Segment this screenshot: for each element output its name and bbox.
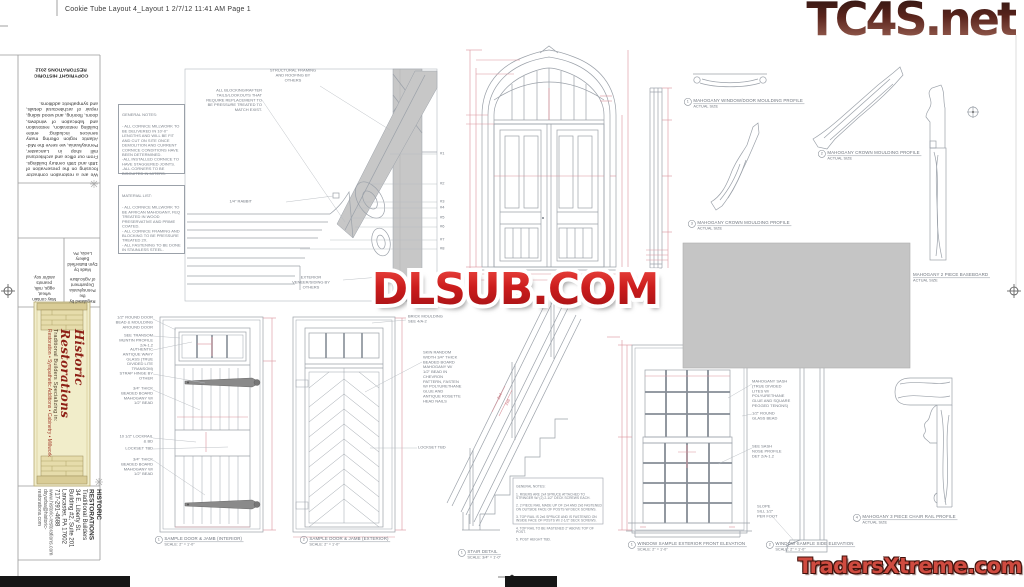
rabbit-note: 1/4" RABBIT [212,199,252,204]
chair-rail-sub: ACTUAL SIZE [862,520,957,524]
logo-subtitle-1: Traditional Builders Specializing in: [52,329,58,463]
stair-note-5: 5. POST HEIGHT TBD. [516,538,602,542]
copyright-text: COPYRIGHT HISTORIC RESTORATIONS 2012 [24,66,98,79]
window-side-caption-number: 2 [766,541,774,549]
callout-3: #3 [440,199,444,204]
chair-rail-number: 4 [853,514,861,522]
address-email: dsyurba@historic-restorations.com [35,489,47,559]
address-company: HISTORIC RESTORATIONS [87,489,102,559]
tradersxtreme-watermark: TradersXtreme.com [798,554,1022,578]
door1-board-label-lower: 3/4" THICK BEADED BOARD MAHOGANY W/ 1/2"… [108,457,153,477]
callout-4: #4 [440,205,444,210]
window-drawing [618,340,827,552]
window-front-caption: 1 WINDOW SAMPLE EXTERIOR FRONT ELEVATION… [628,541,747,551]
baseboard-sub: ACTUAL SIZE [913,278,990,282]
profile1-caption: 1 MAHOGANY WINDOW/DOOR MOULDING PROFILE … [684,98,805,108]
arched-door-drawing [466,46,672,280]
address-phone: 717-291-4688 [53,489,60,559]
structural-framing-note: STRUCTURAL FRAMING AND ROOFING BY OTHERS [258,68,328,83]
callout-7: #7 [440,237,444,242]
door1-caption-number: 1 [155,536,163,544]
door1-bead-label: 1/2" ROUND DOOR BEAD & MOULDING AROUND D… [108,315,153,330]
stair-note-2: 2. 2 PIECE RAIL MADE UP OF 2x4 AND 2x6 F… [516,504,602,512]
window-profile-label: SEE SASH NOSE PROFILE DET 2/A-1.2 [752,444,791,459]
stair-notes-title: GENERAL NOTES: [516,485,602,489]
page-header-title: Cookie Tube Layout 4_Layout 1 2/7/12 11:… [65,6,251,13]
veneer-note: EXTERIOR VENEER/SIDING BY OTHERS [280,275,342,290]
stair-caption: 1 STAIR DETAIL SCALE: 3/4" = 1'-0" [458,549,501,559]
window-sill-label: SLOPE SILL 1/2" PER FOOT [757,504,787,519]
stair-note-4: 4. TOP RAIL TO BE FASTENED 2" ABOVE TOP … [516,527,602,535]
profile2-sub: ACTUAL SIZE [827,156,921,160]
profile2-caption: 2 MAHOGANY CROWN MOULDING PROFILE ACTUAL… [818,150,921,160]
door2-lockset-label: LOCKSET TBD [418,445,458,450]
door1-board-label-upper: 3/4" THICK BEADED BOARD MAHOGANY W/ 1/2"… [108,386,153,406]
about-text: We are a restoration contractor focusing… [26,101,98,178]
door2-caption-number: 2 [300,536,308,544]
dlsub-watermark: DLSUB.COM DLSUB.COM [360,264,670,322]
general-notes-title: GENERAL NOTES: [122,113,183,118]
window-front-caption-number: 1 [628,541,636,549]
profile1-number: 1 [684,98,692,106]
callout-2: #2 [440,181,444,186]
allergen-text: May contain wheat, eggs, milk, peanuts a… [26,275,62,303]
door2-caption: 2 SAMPLE DOOR & JAMB (EXTERIOR) SCALE: 2… [300,536,390,546]
logo-subtitle-2: Restoration • Sympathetic Additions • Ca… [46,329,52,463]
baseboard-caption: MAHOGANY 2 PIECE BASEBOARD ACTUAL SIZE [913,272,990,282]
window-front-caption-scale: SCALE: 2" = 1'-0" [637,547,746,551]
door1-caption-scale: SCALE: 2" = 1'-0" [164,542,243,546]
door1-hinge-label: STRAP HINGE BY OTHER [108,371,153,381]
maker-panel: Regulated by the Pennsylvania Department… [66,242,99,304]
stair-caption-scale: SCALE: 3/4" = 1'-0" [467,555,501,559]
callout-6: #6 [440,224,444,229]
allergen-panel: May contain wheat, eggs, milk, peanuts a… [26,246,62,302]
bottom-bar-center [505,576,557,587]
material-list-title: MATERIAL LIST: [122,194,183,199]
address-tagline: Traditional Builders [80,489,87,559]
window-side-caption: 2 WINDOW SAMPLE SIDE ELEVATION SCALE: 2"… [766,541,855,551]
door1-lockset-label: LOCKSET TBD [108,446,153,451]
callout-8: #8 [440,246,444,251]
material-list: MATERIAL LIST: - ALL CORNICE MILLWORK TO… [122,189,183,257]
chair-rail-caption: 4 MAHOGANY 3 PIECE CHAIR RAIL PROFILE AC… [853,514,957,524]
callout-1: #1 [440,151,444,156]
bottom-bar-left [0,576,130,587]
general-notes: GENERAL NOTES: - ALL CORNICE MILLWORK TO… [122,108,183,181]
profile3-sub: ACTUAL SIZE [697,226,791,230]
chair-rail-drawing [895,378,952,507]
door1-drawing [153,317,276,532]
profile3-number: 3 [688,220,696,228]
profile1-sub: ACTUAL SIZE [693,104,804,108]
regulated-text: Regulated by the Pennsylvania Department… [66,277,99,305]
door1-lockrail-label: 10 1/2" LOCKRAIL & BD [108,434,153,444]
window-sash-label: MAHOGANY SASH (TRUE DIVIDED LITES W/ POL… [752,379,791,408]
historic-restorations-logo: Historic Restorations Traditional Builde… [46,329,86,463]
moulding-profiles-drawing [693,67,979,260]
drawing-sheet: Cookie Tube Layout 4_Layout 1 2/7/12 11:… [0,0,1024,587]
dlsub-watermark-text: DLSUB.COM [360,264,670,315]
stair-caption-number: 1 [458,549,466,557]
address-block: HISTORIC RESTORATIONS Traditional Builde… [56,489,102,559]
material-list-body: - ALL CORNICE MILLWORK TO BE AFRICAN MAH… [122,205,183,252]
address-city: Lancaster, PA 17602 [60,489,67,559]
blocking-note: ALL BLOCKING/RAFTER TAILS/LOOKOUTS THAT … [192,88,262,112]
stair-notes: GENERAL NOTES: 1. RISERS ARE 2x4 SPRUCE … [516,481,602,545]
stair-note-3: 3. TOP RAIL IS 2x6 SPRUCE AND IS FASTENE… [516,515,602,523]
tc4s-watermark: TC4S.net [806,0,1016,46]
address-street: 34 E. Liberty St. [73,489,80,559]
door1-glass-label: AUTHENTIC ANTIQUE WAVY GLASS (TRUE DIVID… [108,347,153,371]
profile3-caption: 3 MAHOGANY CROWN MOULDING PROFILE ACTUAL… [688,220,791,230]
profile2-number: 2 [818,150,826,158]
address-suite: Building #2, Suite 201 [66,489,73,559]
door1-transom-profile-label: SEE TRANSOM MUNTIN PROFILE 2/A-1.2 [108,333,153,348]
door2-skin-label: SKIN RANDOM WIDTH 3/4" THICK BEADED BOAR… [423,350,462,404]
about-panel: We are a restoration contractor focusing… [26,86,98,178]
censor-box [683,243,910,368]
made-by-text: Made by Dym Butterfield Bakery Leola, PA [66,250,99,272]
window-side-caption-scale: SCALE: 2" = 1'-0" [775,547,855,551]
logo-title: Historic Restorations [58,329,86,463]
general-notes-body: - ALL CORNICE MILLWORK TO BE DELIVERED I… [122,124,183,176]
window-bead-label: 1/2" ROUND GLASS BEAD [752,411,791,421]
door2-drawing [293,317,422,537]
door2-caption-scale: SCALE: 2" = 1'-0" [309,542,390,546]
stair-note-1: 1. RISERS ARE 2x4 SPRUCE ATTACHED TO STR… [516,492,602,500]
copyright-panel: COPYRIGHT HISTORIC RESTORATIONS 2012 [24,57,98,79]
callout-5: #5 [440,215,444,220]
door1-caption: 1 SAMPLE DOOR & JAMB (INTERIOR) SCALE: 2… [155,536,244,546]
